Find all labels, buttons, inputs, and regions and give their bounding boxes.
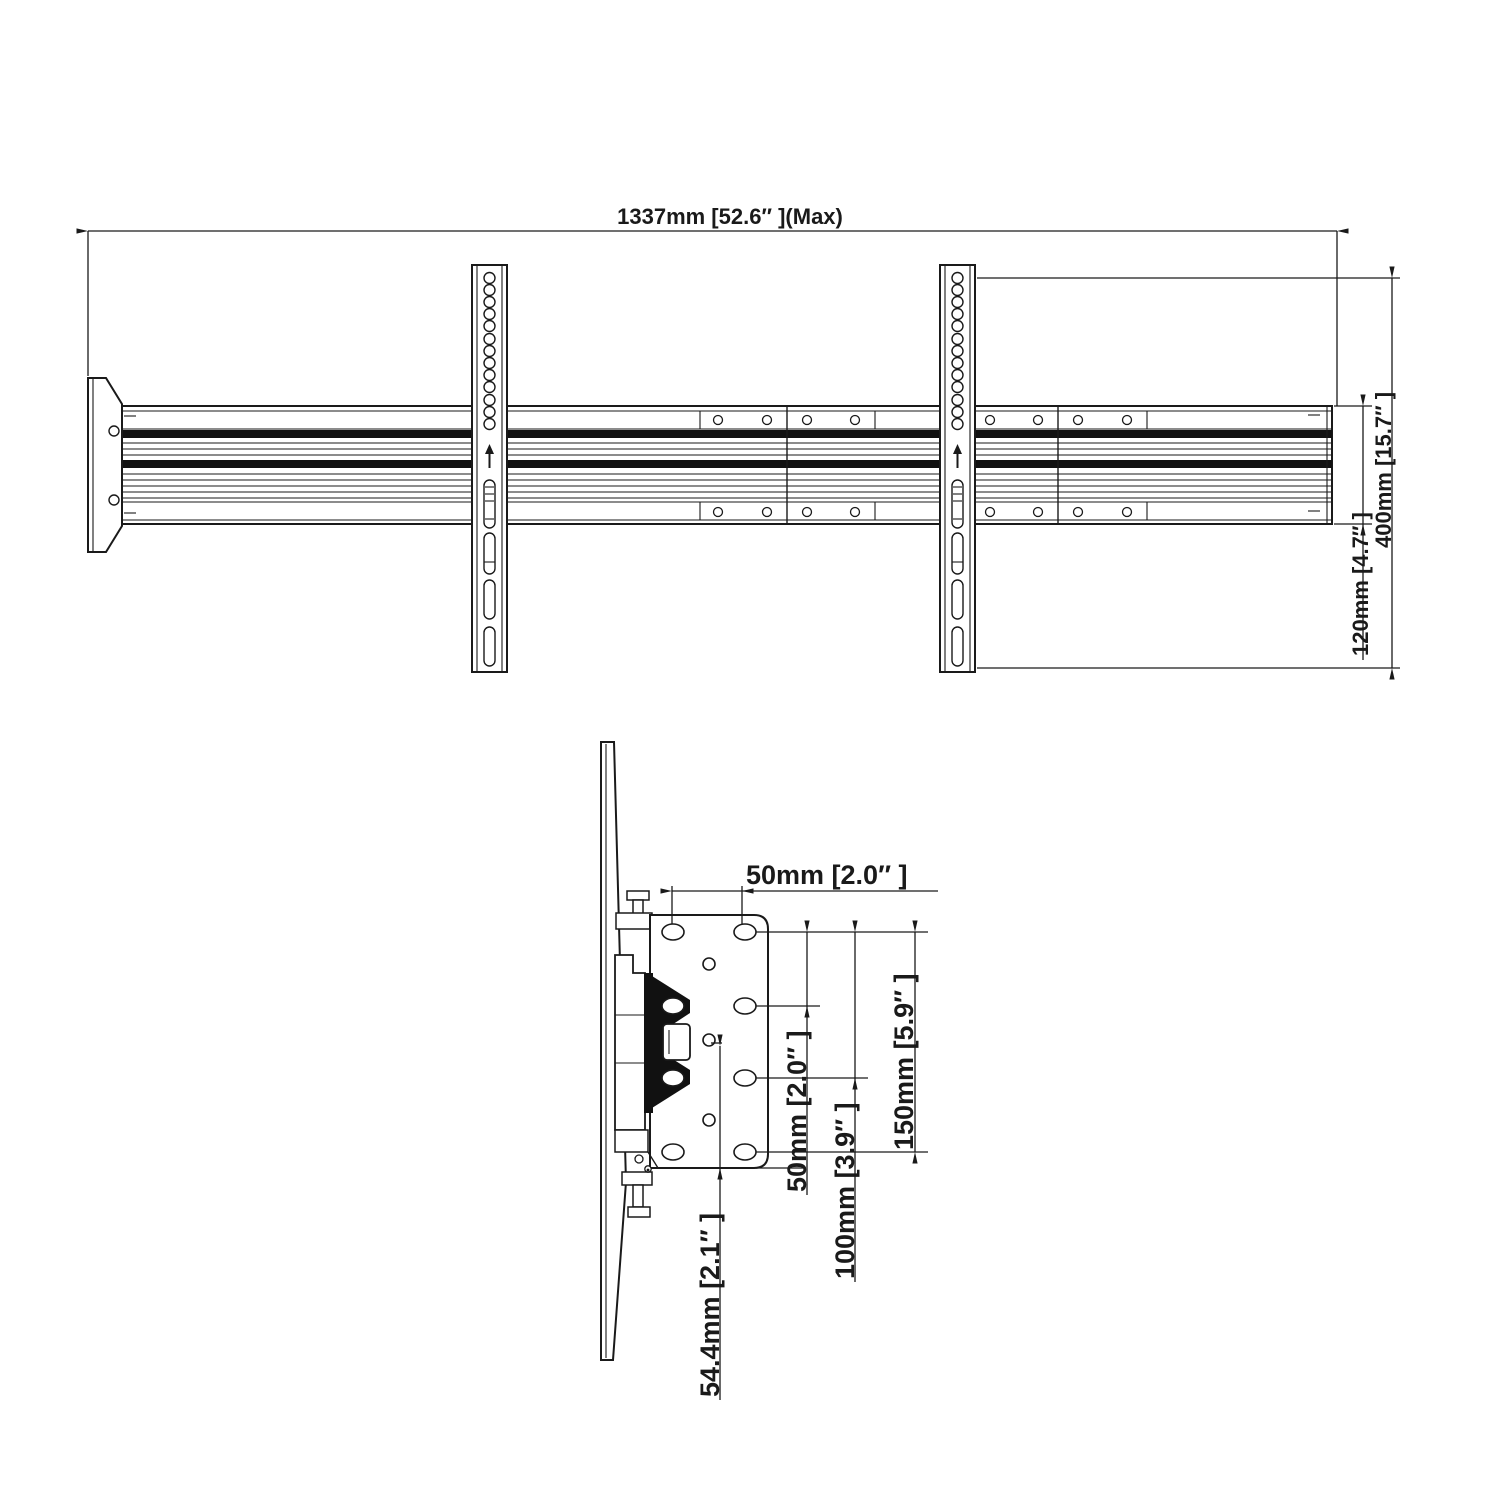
clamp-knob [663, 1024, 690, 1060]
top-clamp-screw [616, 891, 652, 929]
dim-bracket-height-label: 400mm [15.7″ ] [1371, 392, 1396, 548]
pivot-holes [635, 1155, 651, 1172]
dim-vesa-50-label: 50mm [2.0″ ] [782, 1031, 812, 1193]
dim-hole-spacing-top-label: 50mm [2.0″ ] [746, 860, 908, 890]
rail-end-cap [88, 378, 122, 552]
rail-black-band-2 [122, 460, 1332, 468]
dim-rail-height-label: 120mm [4.7″ ] [1348, 512, 1373, 656]
dim-vesa-150-label: 150mm [5.9″ ] [889, 973, 919, 1150]
dimension-overall-width: 1337mm [52.6″ ](Max) [88, 204, 1337, 406]
side-view-drawing: 50mm [2.0″ ] 50mm [2.0″ ] 100mm [3.9″ ] … [601, 742, 938, 1400]
dim-bottom-offset-label: 54.4mm [2.1″ ] [695, 1213, 725, 1397]
dimension-vesa-100: 100mm [3.9″ ] [830, 932, 860, 1282]
dimension-vesa-50: 50mm [2.0″ ] [782, 932, 812, 1195]
bottom-clamp-screw [622, 1172, 652, 1217]
dimension-vesa-150: 150mm [5.9″ ] [889, 932, 919, 1152]
rail-black-band-1 [122, 430, 1332, 438]
drawing-canvas: 1337mm [52.6″ ](Max) 400mm [15.7″ ] 120m… [0, 0, 1500, 1500]
top-view-drawing: 1337mm [52.6″ ](Max) 400mm [15.7″ ] 120m… [88, 204, 1400, 672]
dim-vesa-100-label: 100mm [3.9″ ] [830, 1102, 860, 1279]
technical-drawing: 1337mm [52.6″ ](Max) 400mm [15.7″ ] 120m… [0, 0, 1500, 1500]
rail-assembly [122, 406, 1332, 524]
dimension-rail-height: 120mm [4.7″ ] [1334, 406, 1373, 660]
vesa-bracket-right [940, 265, 975, 672]
vesa-bracket-left [472, 265, 507, 672]
dim-overall-width-label: 1337mm [52.6″ ](Max) [617, 204, 843, 229]
